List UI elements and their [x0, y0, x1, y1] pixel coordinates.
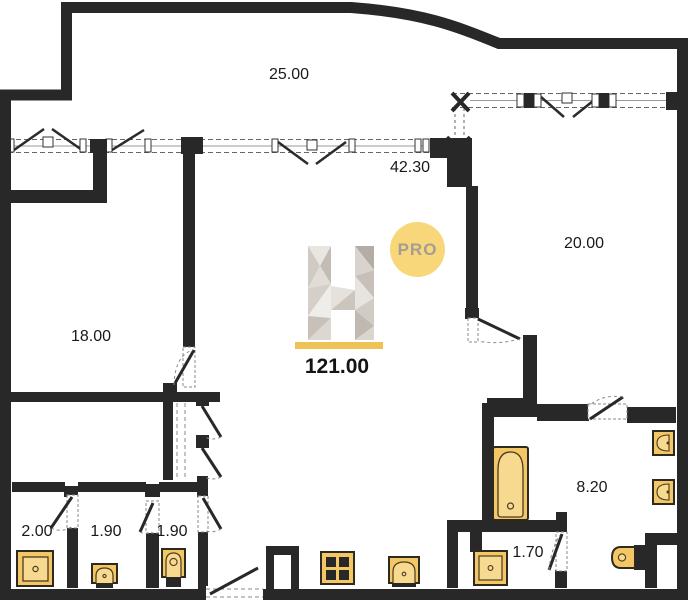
room-area-label-terrace: 25.00 [269, 66, 309, 84]
wall-sink-upper [653, 431, 674, 455]
shower-tray-utility [474, 551, 507, 585]
logo-underline [295, 342, 383, 349]
room-area-label-bedroom-left: 18.00 [71, 328, 111, 346]
room-area-label-bathroom: 8.20 [576, 479, 607, 497]
wall-sink-lower [653, 480, 674, 504]
toilet-bathroom [612, 545, 648, 570]
room-area-label-bedroom-right: 20.00 [564, 235, 604, 253]
closet-dashes [177, 403, 185, 479]
toilet-wc [162, 549, 185, 587]
washbasin [92, 564, 117, 588]
kitchen-sink [389, 557, 419, 587]
bathtub [493, 447, 528, 520]
window-band-right [452, 92, 677, 138]
shower-tray [17, 551, 53, 586]
floor-plan: PRO 121.00 25.0042.3020.0018.008.202.001… [0, 0, 688, 600]
logo-letter-h [308, 246, 374, 341]
logo-pro-badge: PRO [390, 222, 445, 277]
stove [321, 552, 354, 584]
room-area-label-shower-room: 2.00 [21, 523, 52, 541]
window-band-left [8, 129, 429, 164]
total-area-label: 121.00 [305, 355, 369, 379]
room-area-label-utility: 1.70 [512, 544, 543, 562]
room-area-label-washroom: 1.90 [90, 523, 121, 541]
room-area-label-wc: 1.90 [156, 523, 187, 541]
room-area-label-living-kitchen: 42.30 [390, 159, 430, 177]
entrance-door [206, 568, 263, 600]
